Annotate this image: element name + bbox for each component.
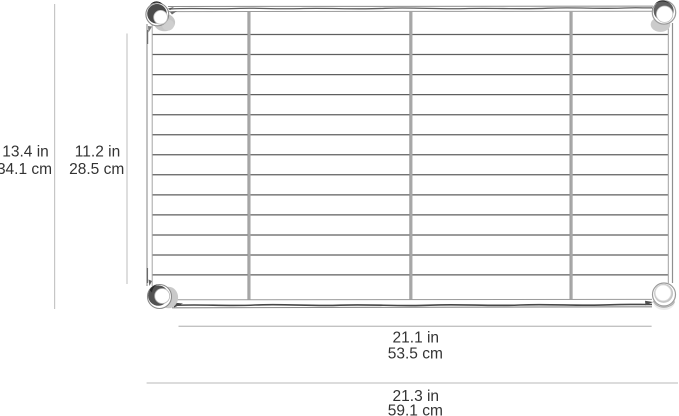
svg-text:11.2 in: 11.2 in: [75, 144, 120, 161]
svg-text:13.4 in: 13.4 in: [2, 144, 49, 161]
svg-text:59.1 cm: 59.1 cm: [388, 402, 443, 416]
svg-text:28.5 cm: 28.5 cm: [69, 161, 124, 178]
svg-text:21.1 in: 21.1 in: [393, 330, 440, 347]
svg-text:53.5 cm: 53.5 cm: [388, 345, 443, 362]
svg-text:34.1 cm: 34.1 cm: [0, 161, 52, 178]
